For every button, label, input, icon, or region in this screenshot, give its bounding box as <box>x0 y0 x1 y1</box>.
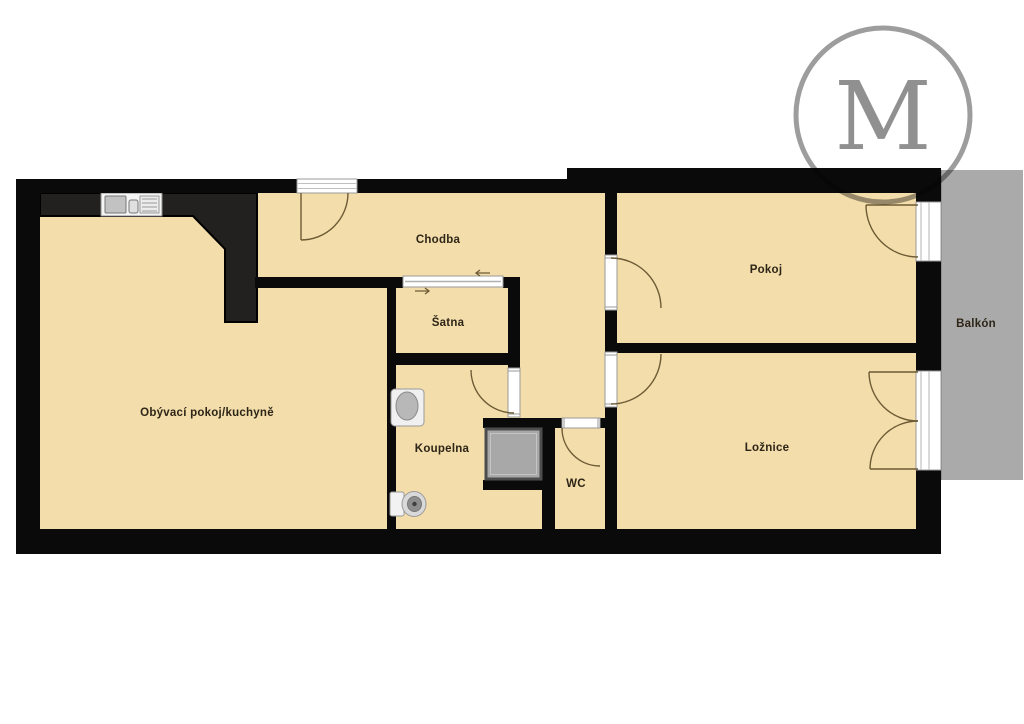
wall-pokoj-loznice <box>617 343 916 353</box>
kitchen-sink-icon <box>101 193 162 216</box>
room-label-balkon: Balkón <box>956 318 996 330</box>
pokoj-door-opening <box>605 255 617 310</box>
floor-plan-drawing <box>0 0 1024 724</box>
loznice-door-opening <box>605 352 617 407</box>
wall-corridor-bottom-left <box>483 418 562 428</box>
wall-outer-top-right <box>567 168 941 193</box>
koupelna-door-opening <box>508 368 520 417</box>
bathroom-sink-icon <box>391 389 424 426</box>
wall-outer-top-left <box>16 179 567 193</box>
floor-right-section <box>567 168 941 554</box>
wall-satna-koupelna <box>390 353 520 365</box>
shower <box>486 429 541 479</box>
room-label-chodba: Chodba <box>416 234 460 246</box>
room-label-obyvaci: Obývací pokoj/kuchyně <box>140 407 274 419</box>
wall-outer-bottom <box>16 529 941 554</box>
toilet-icon <box>390 492 426 517</box>
loznice-balcony-window <box>916 371 941 470</box>
room-label-loznice: Ložnice <box>745 442 790 454</box>
wall-outer-left <box>16 179 40 554</box>
wall-chodba-pokoj-lower <box>605 310 617 352</box>
floor-left-section <box>16 179 567 554</box>
wc-door-opening <box>562 418 600 428</box>
wall-wc-loznice <box>605 407 617 529</box>
pokoj-balcony-window <box>916 202 941 261</box>
floor-plan-page: Chodba Šatna Pokoj Obývací pokoj/kuchyně… <box>0 0 1024 724</box>
wall-shower-nook <box>483 480 555 490</box>
wall-koupelna-wc <box>542 428 555 529</box>
wall-chodba-living <box>255 277 403 288</box>
entrance-door-opening <box>297 179 357 193</box>
room-label-koupelna: Koupelna <box>415 443 469 455</box>
room-label-wc: WC <box>566 478 586 490</box>
room-label-pokoj: Pokoj <box>750 264 783 276</box>
wall-chodba-pokoj-upper <box>605 193 617 255</box>
room-label-satna: Šatna <box>432 317 465 329</box>
